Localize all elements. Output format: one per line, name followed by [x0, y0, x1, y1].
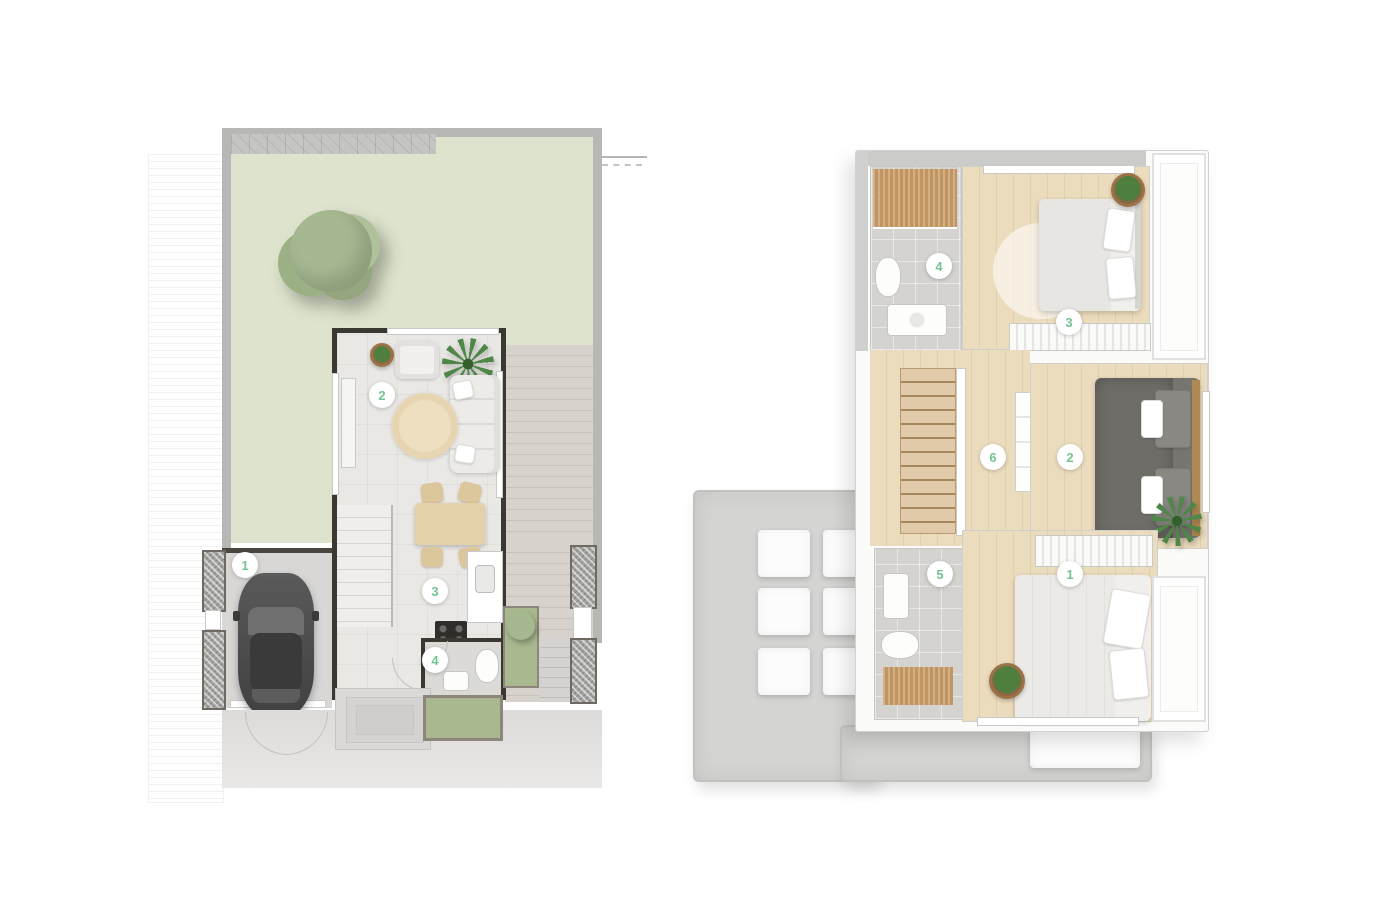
uf-marker-landing-6[interactable]: 6 — [980, 444, 1006, 470]
potted-plant — [370, 343, 394, 367]
boundary-dashed-line — [602, 164, 642, 166]
upper-building — [855, 150, 1209, 732]
sink-ground — [443, 671, 469, 691]
uf-marker-label: 5 — [936, 567, 943, 582]
fence-gate — [573, 607, 592, 639]
bed-1 — [1015, 575, 1151, 721]
bed-2-pillow — [1141, 400, 1163, 438]
concrete-band-left — [856, 151, 868, 351]
car-windshield — [248, 607, 304, 635]
bed-3 — [1039, 199, 1141, 311]
sideboard — [341, 378, 356, 468]
kitchen-sink — [475, 565, 495, 593]
window-bedroom-1 — [977, 717, 1139, 726]
ground-floor-plan: 1 2 3 4 — [145, 118, 645, 808]
site-wall-left — [222, 128, 231, 558]
sofa-pillow — [454, 444, 477, 465]
window-top — [387, 328, 499, 335]
gf-marker-label: 2 — [378, 388, 385, 403]
uf-marker-bathroom-5[interactable]: 5 — [927, 561, 953, 587]
toilet-4 — [875, 257, 901, 297]
uf-marker-label: 3 — [1065, 315, 1072, 330]
terrace-floor — [1160, 586, 1198, 712]
dining-chair — [420, 482, 445, 505]
gf-marker-living[interactable]: 2 — [369, 382, 395, 408]
shower-4 — [873, 169, 957, 229]
vanity-4 — [887, 304, 947, 336]
car-mirror — [233, 611, 240, 621]
wardrobe-1 — [1035, 535, 1153, 567]
palm-bedroom-2 — [1152, 496, 1202, 546]
side-planter — [503, 606, 539, 688]
concrete-band-top — [856, 151, 1146, 166]
bed-1-pillow — [1108, 647, 1149, 700]
car-mirror — [312, 611, 319, 621]
uf-marker-label: 4 — [935, 259, 942, 274]
round-rug — [392, 393, 458, 459]
stair-railing — [956, 368, 966, 536]
staircase-ground — [337, 505, 393, 627]
balcony-top — [1152, 153, 1206, 360]
fence-pillar — [570, 638, 597, 704]
upper-floor-plan: 1 2 3 4 5 6 — [690, 140, 1230, 800]
gf-marker-label: 1 — [241, 558, 248, 573]
bed-1-duvet — [1015, 575, 1115, 721]
car-rear-window — [252, 689, 300, 703]
toilet-5 — [881, 631, 919, 659]
paving-strip — [231, 134, 436, 154]
dining-table — [415, 503, 485, 545]
window-left — [332, 373, 339, 495]
uf-marker-bedroom-2[interactable]: 2 — [1057, 444, 1083, 470]
gf-marker-kitchen[interactable]: 3 — [422, 578, 448, 604]
toilet-ground — [475, 649, 499, 683]
bed-3-duvet — [1039, 199, 1111, 311]
car-roof — [250, 633, 302, 691]
bed-3-pillow — [1105, 256, 1137, 300]
dining-chair — [457, 481, 483, 506]
garage-pillar — [202, 630, 226, 710]
bed-1-pillow — [1102, 588, 1151, 650]
plant-bedroom-1 — [989, 663, 1025, 699]
plant-bedroom-3 — [1111, 173, 1145, 207]
floor-plan-canvas: 1 2 3 4 — [0, 0, 1380, 920]
garden-tree — [290, 210, 372, 292]
gf-marker-label: 3 — [431, 584, 438, 599]
staircase-upper — [900, 368, 956, 534]
fence-pillar — [570, 545, 597, 609]
living-block — [332, 328, 506, 700]
shower-5 — [883, 667, 953, 705]
boundary-line — [602, 156, 647, 158]
side-steps — [540, 638, 570, 700]
uf-marker-label: 6 — [989, 450, 996, 465]
car — [238, 573, 314, 717]
uf-marker-bedroom-1[interactable]: 1 — [1057, 561, 1083, 587]
gf-marker-garage[interactable]: 1 — [232, 552, 258, 578]
window-bedroom-3 — [983, 165, 1135, 174]
sink-5 — [883, 573, 909, 619]
terrace-bottom — [1152, 576, 1206, 722]
bedroom-1 — [962, 530, 1158, 722]
balcony-floor — [1160, 163, 1198, 351]
uf-marker-label: 1 — [1066, 567, 1073, 582]
skylight — [758, 588, 810, 635]
gf-marker-bathroom[interactable]: 4 — [422, 647, 448, 673]
uf-marker-bedroom-3[interactable]: 3 — [1056, 309, 1082, 335]
planter-shrub — [507, 612, 535, 640]
garage-pillar — [202, 550, 226, 612]
uf-marker-bathroom-4[interactable]: 4 — [926, 253, 952, 279]
skylight-long — [1030, 728, 1140, 768]
bed-3-pillow — [1102, 207, 1136, 252]
uf-marker-label: 2 — [1066, 450, 1073, 465]
entrance-step — [356, 705, 414, 735]
skylight — [758, 530, 810, 577]
entrance-steps — [335, 688, 431, 750]
dining-chair — [421, 547, 443, 567]
window-bedroom-2 — [1202, 391, 1210, 513]
garage-side-gate — [205, 610, 221, 630]
entrance-planter — [423, 695, 503, 741]
armchair — [395, 341, 439, 379]
skylight — [758, 648, 810, 695]
gf-marker-label: 4 — [431, 653, 438, 668]
